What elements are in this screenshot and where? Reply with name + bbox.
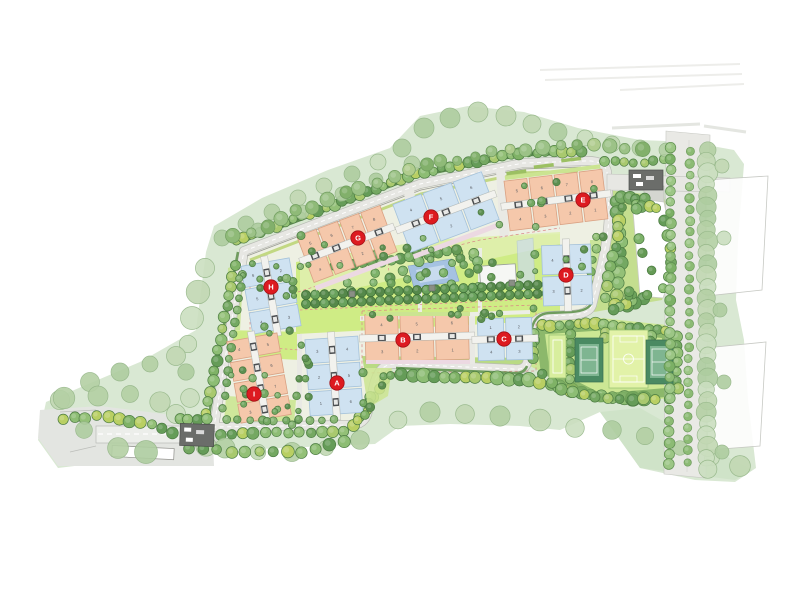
svg-text:B: B [400, 336, 406, 345]
svg-text:F: F [429, 213, 434, 222]
svg-text:G: G [355, 234, 361, 243]
svg-text:A: A [334, 379, 340, 388]
svg-text:H: H [268, 283, 273, 292]
svg-text:C: C [501, 335, 507, 344]
svg-text:E: E [580, 196, 585, 205]
svg-text:I: I [253, 390, 255, 399]
svg-text:D: D [563, 271, 569, 280]
